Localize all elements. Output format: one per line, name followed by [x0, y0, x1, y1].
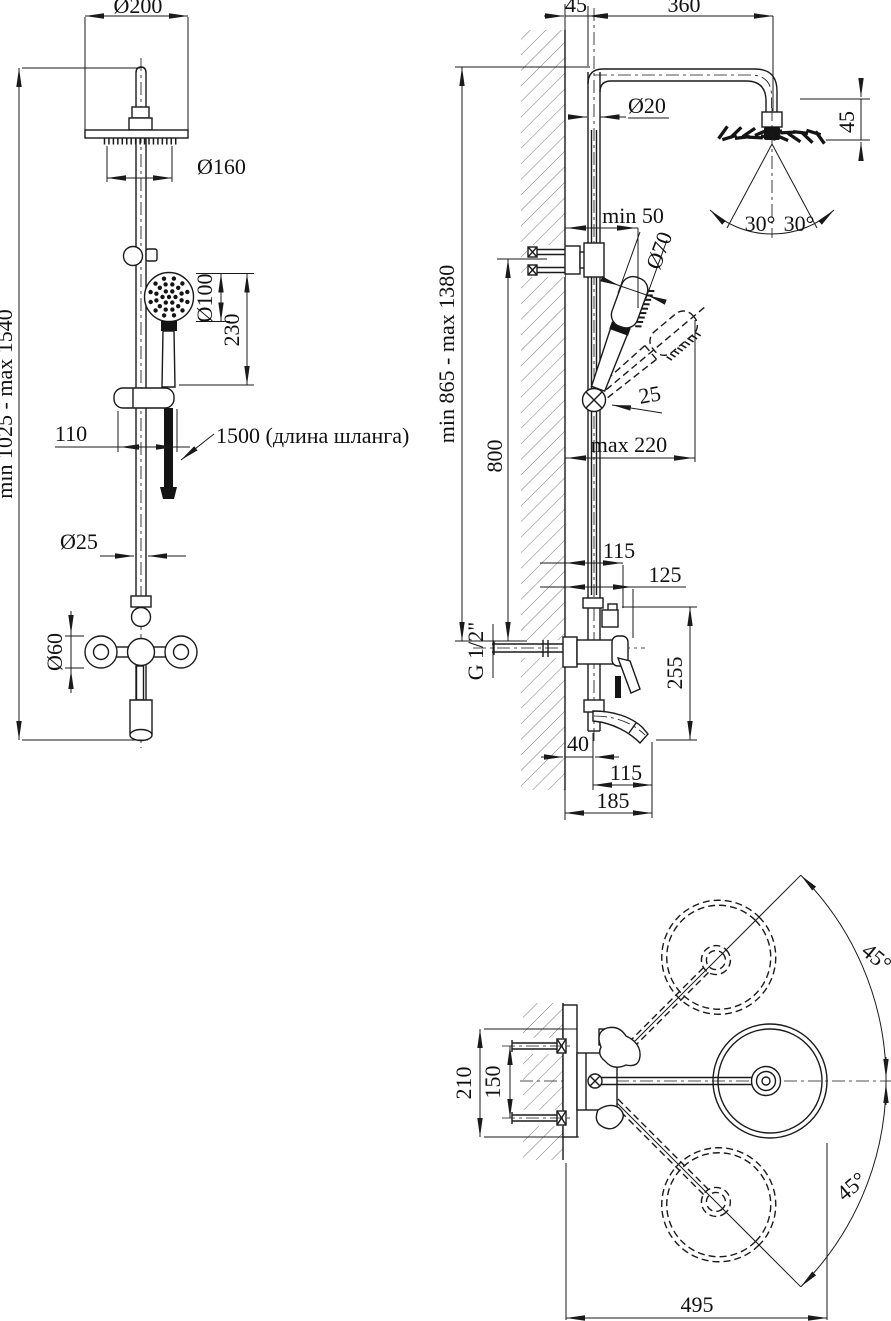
dim-hand-diameter: Ø100	[192, 274, 217, 323]
dim-hand-head-diameter: Ø70	[641, 228, 677, 272]
mixer-handle-left	[85, 636, 117, 668]
lever-top	[599, 1027, 640, 1067]
dim-head-height: 45	[834, 111, 859, 133]
top-dimensions: 210 150 495 45° 45°	[451, 938, 891, 1320]
diverter-knob	[602, 610, 618, 627]
wall-bracket-side	[527, 243, 604, 277]
dim-total-width: 495	[681, 1292, 714, 1317]
dim-spray-angle-left: 30°	[745, 211, 776, 236]
dim-swivel-lower: 45°	[831, 1167, 871, 1206]
dim-bracket-height: 800	[482, 440, 507, 473]
dim-hand-length: 230	[219, 314, 244, 347]
shower-arm	[588, 69, 777, 113]
drawing-canvas: Ø200 min 1025 - max 1540 Ø160 Ø100 230 1…	[0, 0, 891, 1321]
swivel-radial-lower	[595, 1081, 801, 1287]
rain-head-disc	[85, 130, 188, 138]
dim-upper-offset: 115	[603, 538, 635, 563]
dim-reach: max 220	[591, 432, 667, 457]
front-view: Ø200 min 1025 - max 1540 Ø160 Ø100 230 1…	[0, 0, 409, 748]
dim-wall-gap: 40	[567, 731, 589, 756]
dim-lever-offset: 125	[649, 562, 682, 587]
mixer-lever	[618, 658, 640, 693]
dim-height-range-side: min 865 - max 1380	[434, 265, 459, 443]
mixer-top	[502, 1005, 640, 1137]
dim-hose-note: 1500 (длина шланга)	[216, 423, 409, 448]
dim-bolt-spacing: 150	[480, 1066, 505, 1099]
dim-spout-drop: 255	[662, 657, 687, 690]
dim-spout-reach: 115	[610, 760, 642, 785]
dim-plate-height: 210	[451, 1067, 476, 1100]
side-view: 45 360 Ø20 45 30° 30° min 50	[434, 0, 870, 820]
dim-swivel-upper: 45°	[857, 938, 891, 977]
dim-height-range: min 1025 - max 1540	[0, 309, 17, 498]
dim-bracket-offset: 110	[55, 421, 87, 446]
dim-pivot-offset: 25	[637, 380, 663, 408]
top-view: 210 150 495 45° 45°	[451, 875, 891, 1320]
dim-thread: G 1/2"	[463, 622, 488, 680]
dim-spray-angle-right: 30°	[784, 211, 815, 236]
hand-shower-front	[114, 273, 194, 500]
wall-hatch	[521, 30, 565, 790]
dim-wall-offset: 45	[565, 0, 587, 17]
dim-pipe-diameter: Ø25	[60, 529, 98, 554]
mixer-front	[85, 596, 197, 741]
technical-drawing: Ø200 min 1025 - max 1540 Ø160 Ø100 230 1…	[0, 0, 891, 1321]
slider-bracket	[124, 247, 143, 266]
dim-handle-diameter: Ø60	[42, 633, 67, 671]
rain-head-nozzles	[105, 139, 176, 145]
side-dimensions: 45 360 Ø20 45 30° 30° min 50	[434, 0, 870, 820]
dim-rain-diameter: Ø160	[197, 154, 246, 179]
wall-holder	[114, 388, 174, 408]
dim-pipe-diameter-side: Ø20	[628, 93, 666, 118]
mixer-handle-right	[165, 636, 197, 668]
wall-hatch-top	[523, 1003, 563, 1160]
spout-side	[593, 711, 648, 743]
dim-total-reach: 185	[597, 788, 630, 813]
dim-head-diameter: Ø200	[114, 0, 163, 18]
shower-column-side	[588, 8, 834, 742]
dim-arm-length: 360	[668, 0, 701, 17]
dim-wall-clearance: min 50	[602, 203, 664, 228]
front-dimensions: Ø200 min 1025 - max 1540 Ø160 Ø100 230 1…	[0, 0, 409, 740]
